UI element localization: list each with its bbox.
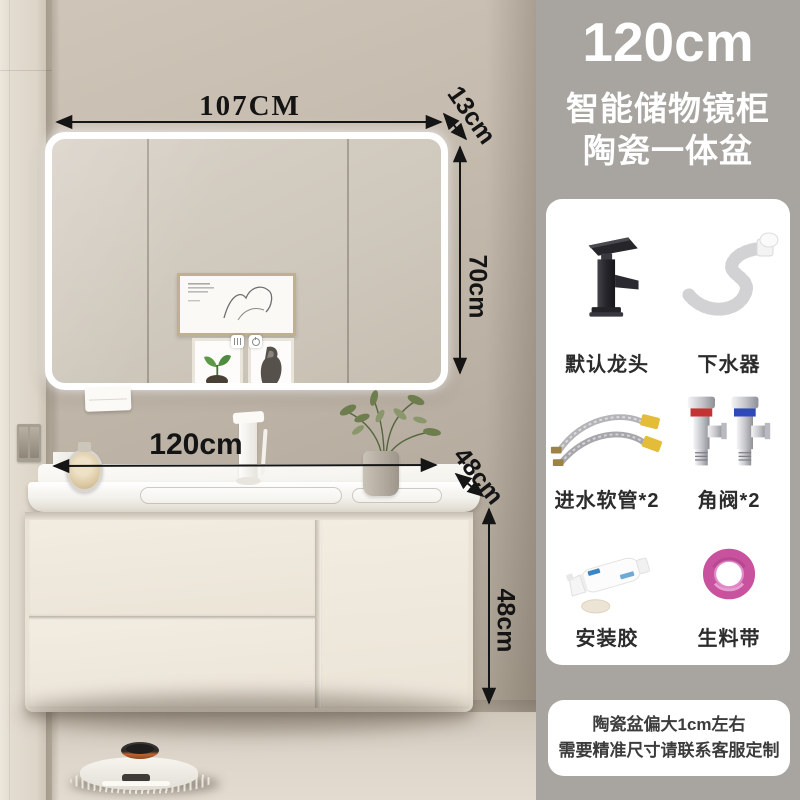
dimension-label-mirror-height: 70cm: [463, 255, 492, 309]
cabinet-door: [321, 520, 469, 708]
product-image: 107CM 13cm 70cm 120cm 48cm 48cm 120cm 智能…: [0, 0, 800, 800]
accessory-label: 进水软管*2: [555, 484, 660, 513]
under-cabinet-shadow: [20, 694, 476, 732]
robot-lidar-cap: [126, 744, 154, 754]
soffit-line: [0, 70, 52, 71]
thread-seal-tape-icon: [696, 529, 762, 618]
accessory-label: 生料带: [698, 622, 761, 651]
hanging-tissue: [85, 386, 132, 412]
product-size-title: 120cm: [536, 10, 800, 74]
note-line-2: 需要精准尺寸请联系客服定制: [559, 738, 780, 764]
note-line-1: 陶瓷盆偏大1cm左右: [592, 712, 745, 738]
product-subtitle-1: 智能储物镜柜: [536, 82, 800, 130]
accessory-label: 下水器: [698, 348, 761, 377]
mirror-reflection-sheen: [52, 139, 441, 383]
faucet-base: [236, 477, 261, 485]
product-subtitle-2: 陶瓷一体盆: [536, 124, 800, 172]
accessory-angle-valve: 角阀*2: [668, 395, 790, 513]
accessory-label: 默认龙头: [565, 348, 649, 377]
dimension-label-vanity-width: 120cm: [130, 428, 262, 462]
cabinet-drawer-top: [29, 520, 315, 616]
dimension-label-mirror-width: 107CM: [170, 90, 330, 123]
accessory-adhesive: 安装胶: [546, 529, 668, 651]
drain-pipe-icon: [679, 209, 779, 344]
mirror-cabinet: [45, 132, 448, 390]
perfume-bottle: [66, 449, 103, 492]
angle-valve-icon: [686, 392, 772, 480]
dimension-label-vanity-height: 48cm: [491, 588, 520, 654]
perfume-cap: [78, 442, 91, 452]
cabinet-top-shadow: [25, 512, 473, 520]
accessory-faucet: 默认龙头: [546, 209, 668, 377]
bathroom-photo: 107CM 13cm 70cm 120cm 48cm 48cm: [0, 0, 536, 800]
info-sidebar: 120cm 智能储物镜柜 陶瓷一体盆: [536, 0, 800, 800]
accessory-inlet-hose: 进水软管*2: [546, 395, 668, 513]
vanity-cabinet: [25, 512, 473, 712]
faucet-icon: [574, 209, 640, 344]
inlet-hose-icon: [549, 395, 665, 480]
accessory-label: 安装胶: [576, 622, 639, 651]
cabinet-gap-line: [315, 520, 321, 708]
wall-switch: [17, 424, 41, 462]
accessory-drain: 下水器: [668, 209, 790, 377]
faucet-handle: [233, 411, 265, 424]
robot-bumper: [102, 781, 170, 786]
wall-edge-line: [9, 0, 10, 800]
accessories-panel: 默认龙头 下水器: [546, 199, 790, 665]
adhesive-icon: [560, 526, 654, 618]
switch-key: [19, 427, 28, 458]
basin-recess: [140, 487, 342, 504]
plant-vase: [363, 451, 399, 496]
note-box: 陶瓷盆偏大1cm左右 需要精准尺寸请联系客服定制: [548, 700, 790, 776]
accessory-label: 角阀*2: [698, 484, 761, 513]
drawer-gap-line: [29, 616, 315, 620]
accessory-thread-seal-tape: 生料带: [668, 529, 790, 651]
switch-key: [30, 427, 39, 458]
